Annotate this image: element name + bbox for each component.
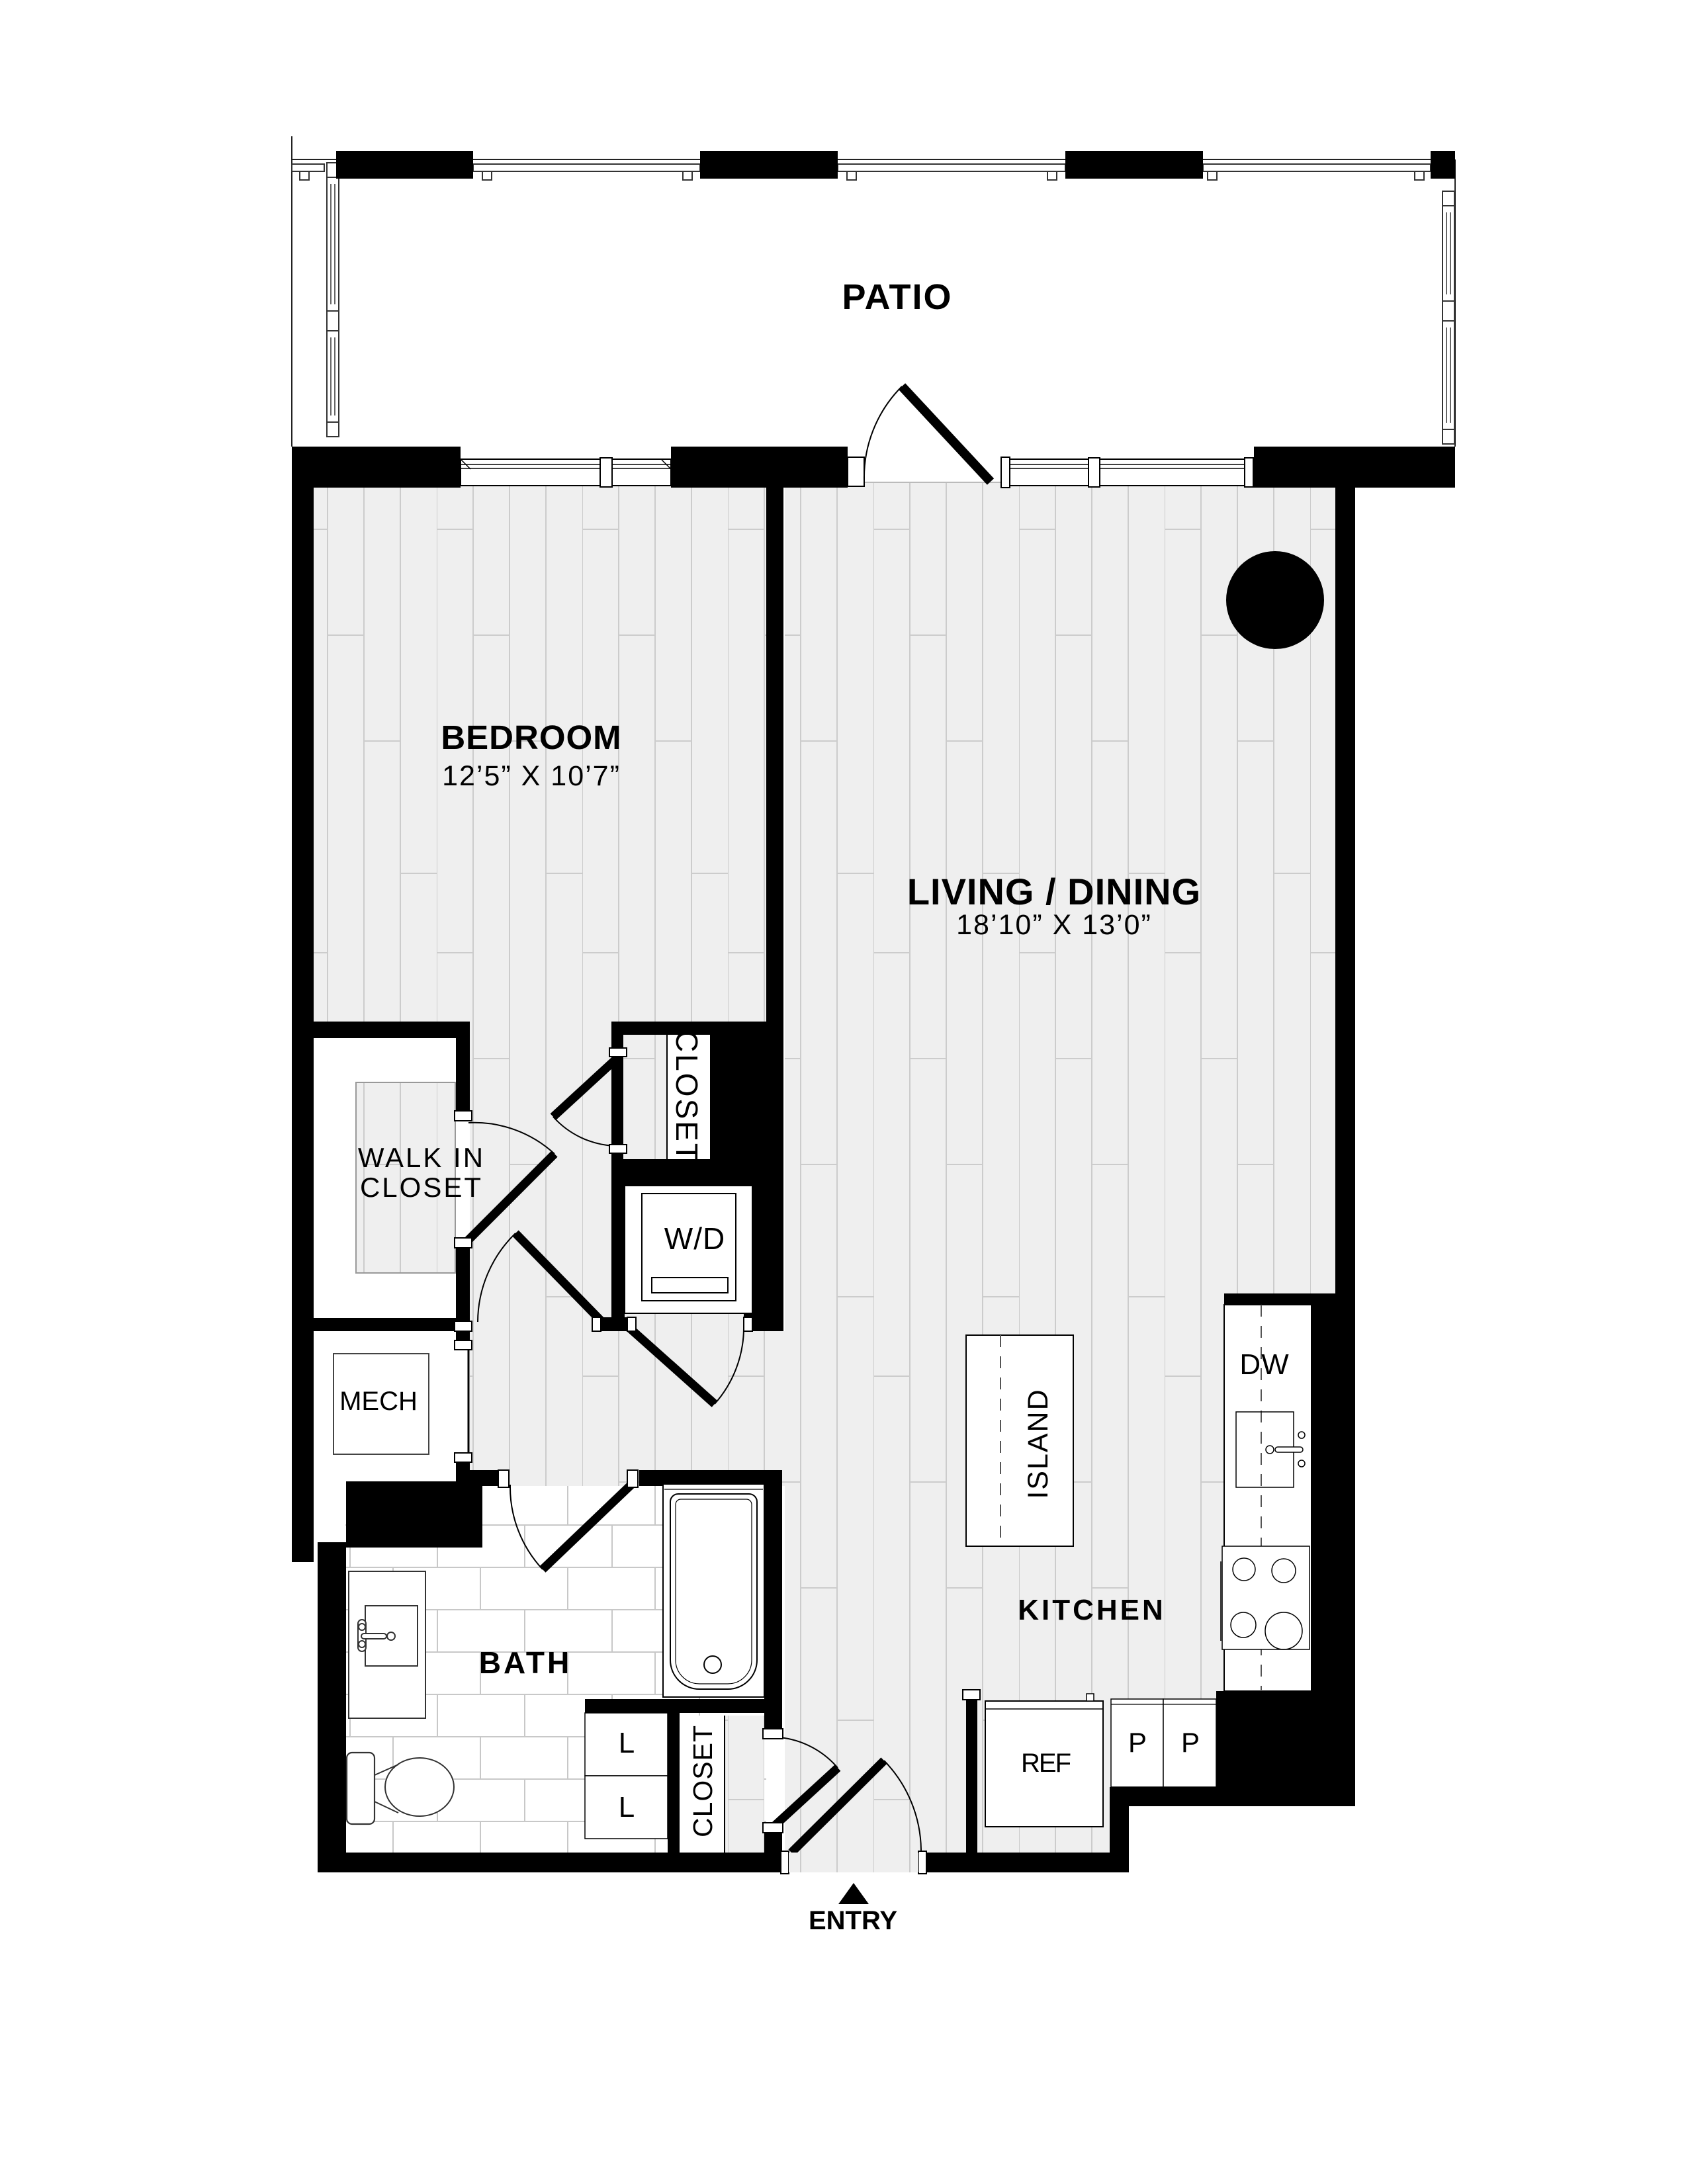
svg-text:CLOSET: CLOSET	[688, 1725, 718, 1837]
svg-text:DW: DW	[1239, 1348, 1289, 1381]
svg-text:18’10” X 13’0”: 18’10” X 13’0”	[956, 909, 1152, 941]
svg-text:REF: REF	[1021, 1749, 1071, 1778]
svg-text:PATIO: PATIO	[842, 277, 953, 317]
svg-text:ISLAND: ISLAND	[1022, 1388, 1054, 1499]
svg-text:BEDROOM: BEDROOM	[441, 719, 621, 756]
svg-text:P: P	[1181, 1727, 1200, 1758]
svg-text:LIVING / DINING: LIVING / DINING	[907, 871, 1201, 912]
svg-text:KITCHEN: KITCHEN	[1018, 1594, 1166, 1626]
svg-text:BATH: BATH	[479, 1645, 572, 1680]
svg-text:L: L	[619, 1791, 635, 1823]
svg-text:CLOSET: CLOSET	[670, 1030, 704, 1164]
svg-text:L: L	[619, 1727, 635, 1759]
svg-text:CLOSET: CLOSET	[360, 1172, 483, 1203]
svg-text:WALK IN: WALK IN	[358, 1142, 485, 1173]
svg-text:MECH: MECH	[339, 1387, 418, 1416]
svg-text:W/D: W/D	[664, 1221, 725, 1256]
svg-text:P: P	[1128, 1727, 1147, 1758]
svg-text:ENTRY: ENTRY	[809, 1906, 897, 1935]
svg-text:12’5” X 10’7”: 12’5” X 10’7”	[442, 760, 621, 792]
